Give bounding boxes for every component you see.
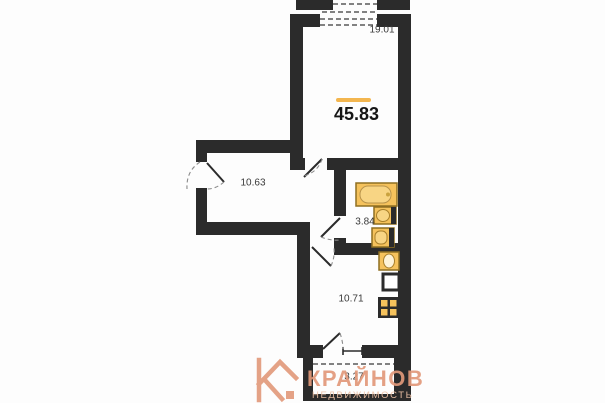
- brand-name: КРАЙНОВ: [307, 368, 424, 390]
- door-leaves: [207, 159, 340, 349]
- total-area-value: 45.83: [334, 105, 380, 123]
- total-area-block: 45.83: [334, 98, 380, 123]
- fridge-icon: [383, 274, 399, 290]
- kitchen-sink-icon: [379, 252, 399, 270]
- floor-plan-drawing: [0, 0, 605, 403]
- toilet-icon: [372, 228, 394, 247]
- floor-plan: 19.01 10.63 3.84 10.71 3.27 45.83 КРАЙНО…: [0, 0, 605, 403]
- kitchen-window: [343, 347, 362, 355]
- bathtub-icon: [356, 183, 397, 206]
- stove-icon: [378, 297, 399, 318]
- accent-line: [336, 98, 371, 102]
- brand-k-house-icon: [252, 357, 300, 403]
- brand-subtitle: НЕДВИЖИМОСТЬ: [312, 391, 413, 401]
- bathroom-area-label: 3.84: [355, 217, 374, 228]
- hallway-area-label: 10.63: [240, 178, 265, 189]
- kitchen-area-label: 10.71: [338, 294, 363, 305]
- living-room-area-label: 19.01: [369, 25, 394, 36]
- washbasin-icon: [374, 207, 396, 224]
